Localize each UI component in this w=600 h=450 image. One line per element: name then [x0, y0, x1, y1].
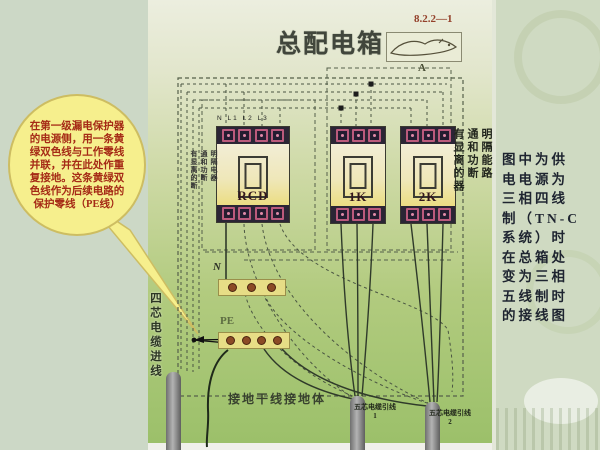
terminal-strip-top — [401, 127, 455, 144]
cable-1-text: 五芯电缆引线 — [354, 403, 396, 411]
coil-symbol-inner — [245, 163, 262, 189]
device-note-breakers: 有显离的器通和功断明隔能路 — [452, 128, 492, 193]
text-line: 绿双色线与工作零线 — [30, 146, 125, 159]
terminal-strip-bottom — [331, 206, 385, 223]
cable-2-text: 五芯电缆引线 — [429, 409, 471, 417]
text-line: 的电源侧，用一条黄 — [30, 133, 125, 146]
terminal — [422, 208, 435, 221]
corner-sketch — [386, 32, 462, 62]
text-line: 在第一级漏电保护器 — [30, 120, 125, 133]
figure-number: 8.2.2—1 — [414, 13, 453, 25]
terminal — [222, 129, 235, 142]
text-line: 图中为供 — [502, 150, 594, 170]
text-line: 有显离的器 — [452, 128, 464, 193]
terminal — [255, 129, 268, 142]
slide: 总配电箱 8.2.2—1 A 在第一级漏电保护器的电源侧，用一条黄绿双色线与工作… — [0, 0, 600, 450]
pe-bus-bar[interactable] — [218, 332, 290, 349]
text-line: 的接线图 — [502, 306, 594, 326]
terminal — [336, 208, 349, 221]
text-line: 通和功断 — [466, 128, 478, 193]
text-line: 并联，并在此处作重 — [30, 159, 125, 172]
incoming-cable — [166, 372, 181, 450]
terminal — [352, 208, 365, 221]
terminal — [368, 129, 381, 142]
text-line: 电电源为 — [502, 170, 594, 190]
text-line: 通和功断 — [200, 150, 208, 190]
pe-bus-label: PE — [220, 315, 234, 327]
breaker-body: 1K — [331, 144, 385, 206]
terminal-strip-top — [217, 127, 289, 144]
text-line: 复接地。这条黄绿双 — [30, 172, 125, 185]
text-line: 五线制时 — [502, 287, 594, 307]
terminal — [271, 129, 284, 142]
breaker-label: 1K — [331, 189, 385, 205]
terminal — [238, 207, 251, 220]
ground-line-label: 接地干线接地体 — [228, 390, 326, 407]
incoming-cable-label: 四芯电缆进线 — [147, 292, 163, 379]
breaker-label: 2K — [401, 189, 455, 205]
terminal-row-label: N L1 L2 L3 — [217, 115, 269, 122]
text-line: 明隔能路 — [480, 128, 492, 193]
terminal — [438, 129, 451, 142]
terminal — [255, 207, 268, 220]
terminal — [406, 129, 419, 142]
coil-symbol-inner — [350, 163, 367, 189]
bus-connection-dot — [247, 283, 256, 292]
terminal — [336, 129, 349, 142]
bus-connection-dot — [267, 283, 276, 292]
terminal — [222, 207, 235, 220]
watermark-texture — [496, 408, 600, 450]
text-line: 保护零线（PE线） — [34, 198, 121, 211]
bus-connection-dot — [242, 336, 251, 345]
breaker-body: RCD — [217, 144, 289, 205]
n-bus-bar[interactable] — [218, 279, 286, 296]
terminal — [422, 129, 435, 142]
cable-2-number: 2 — [429, 418, 471, 426]
device-note-rcd: 有显离的断通和功断明隔电器 — [190, 150, 218, 190]
outgoing-cable-2-label: 五芯电缆引线 2 — [429, 408, 471, 426]
text-line: 有显离的断 — [190, 150, 198, 190]
coil-symbol-inner — [420, 163, 437, 189]
bus-connection-dot — [228, 283, 237, 292]
sketch-mark-label: A — [418, 62, 426, 74]
text-line: 三相四线 — [502, 189, 594, 209]
terminal-strip-bottom — [217, 205, 289, 222]
text-line: 系统）时 — [502, 228, 594, 248]
terminal — [271, 207, 284, 220]
bottom-border-strip — [148, 443, 492, 450]
side-note-text: 图中为供电电源为三相四线制（TN-C系统）时在总箱处变为三相五线制时的接线图 — [502, 150, 594, 326]
terminal-strip-bottom — [401, 206, 455, 223]
text-line: 在总箱处 — [502, 248, 594, 268]
bus-connection-dot — [257, 336, 266, 345]
outgoing-cable-1-label: 五芯电缆引线 1 — [354, 402, 396, 420]
text-line: 制（TN-C — [502, 209, 594, 229]
breaker-body: 2K — [401, 144, 455, 206]
terminal — [238, 129, 251, 142]
breaker-1k[interactable]: 1K — [330, 126, 386, 224]
watermark-circle — [514, 10, 600, 104]
terminal — [352, 129, 365, 142]
callout-bubble: 在第一级漏电保护器的电源侧，用一条黄绿双色线与工作零线并联，并在此处作重复接地。… — [8, 94, 146, 236]
breaker-label: RCD — [217, 188, 289, 204]
terminal — [406, 208, 419, 221]
text-line: 明隔电器 — [210, 150, 218, 190]
breaker-rcd[interactable]: RCD — [216, 126, 290, 223]
text-line: 变为三相 — [502, 267, 594, 287]
breaker-2k[interactable]: 2K — [400, 126, 456, 224]
n-bus-label: N — [213, 261, 221, 273]
terminal — [438, 208, 451, 221]
text-line: 色线作为后续电路的 — [30, 185, 125, 198]
bus-connection-dot — [226, 336, 235, 345]
terminal — [368, 208, 381, 221]
bus-connection-dot — [273, 336, 282, 345]
terminal-strip-top — [331, 127, 385, 144]
cable-1-number: 1 — [354, 412, 396, 420]
